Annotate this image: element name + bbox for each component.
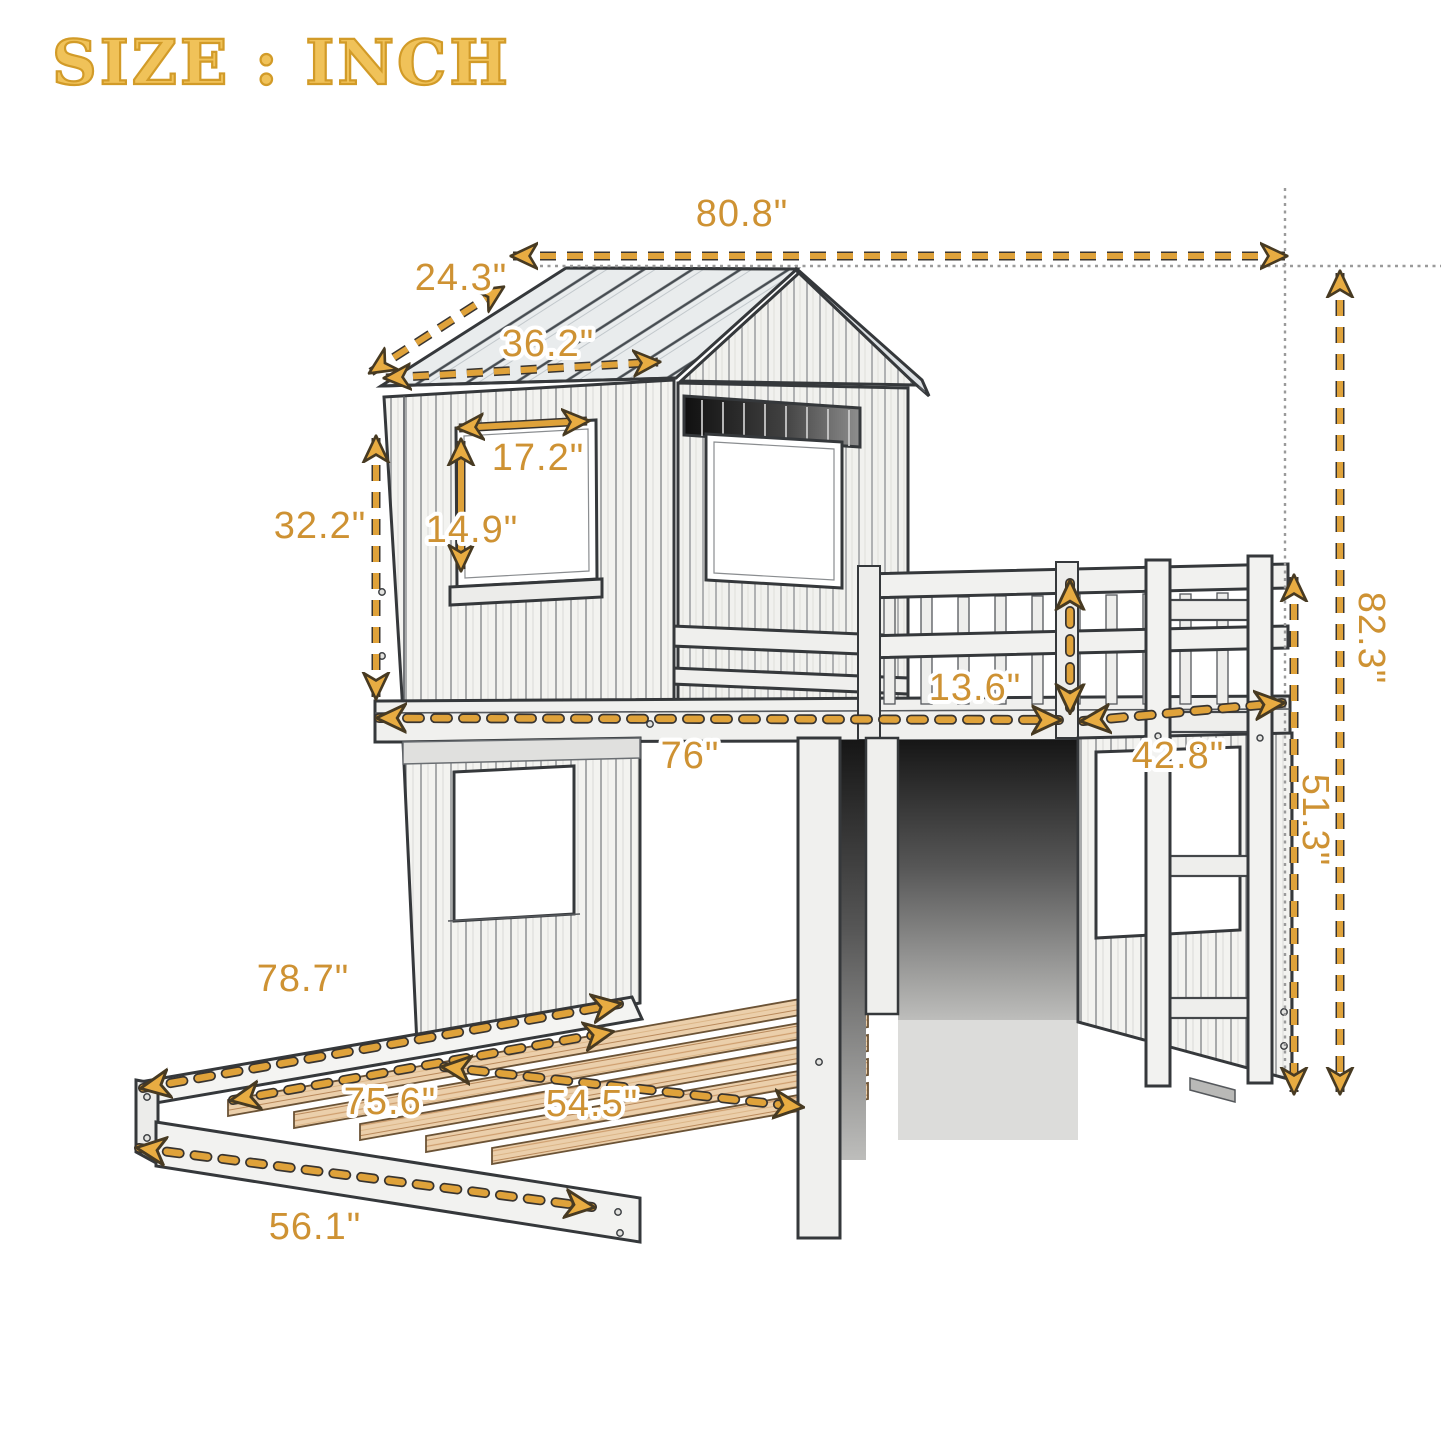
- dim-label-lower-bed-width: 56.1": [269, 1206, 361, 1248]
- dim-label-guardrail-height: 13.6": [929, 667, 1021, 709]
- gable-window: [706, 434, 842, 588]
- dim-label-roof-slope: 24.3": [415, 257, 507, 299]
- dim-label-under-loft-height: 51.3": [1294, 774, 1336, 866]
- dim-label-window-height: 14.9": [426, 509, 518, 551]
- page-title: SIZE : INCH: [52, 26, 511, 99]
- doorway-opening: [898, 740, 1078, 1020]
- dim-label-total-height: 82.3": [1350, 592, 1392, 684]
- dim-label-upper-section-height: 32.2": [274, 505, 366, 547]
- ladder-rung: [1170, 998, 1248, 1018]
- front-post-left: [798, 738, 840, 1238]
- dim-label-roof-edge: 36.2": [502, 323, 594, 365]
- ladder-rung: [1170, 600, 1248, 620]
- dim-label-window-width: 17.2": [492, 437, 584, 479]
- dim-label-overall-width: 80.8": [696, 193, 788, 235]
- dim-label-slat-length: 75.6": [344, 1081, 436, 1123]
- bed-dimension-diagram: 80.8" 24.3" 36.2" 17.2" 14.9": [0, 0, 1445, 1445]
- dim-label-slat-span: 54.5": [546, 1083, 638, 1125]
- front-post-mid: [866, 738, 898, 1014]
- ladder-rung: [1170, 856, 1248, 876]
- dim-label-bunk-length: 76": [661, 735, 720, 777]
- dim-label-lower-bed-length: 78.7": [257, 958, 349, 1000]
- dim-label-loft-end-depth: 42.8": [1132, 735, 1224, 777]
- upper-left-wall: [379, 380, 674, 713]
- lower-left-wall: [403, 738, 640, 1045]
- diagram-page: 80.8" 24.3" 36.2" 17.2" 14.9": [0, 0, 1445, 1445]
- ladder-stringer-right: [1248, 556, 1272, 1083]
- lower-left-window: [454, 766, 574, 921]
- ladder-stringer-left: [1146, 560, 1170, 1086]
